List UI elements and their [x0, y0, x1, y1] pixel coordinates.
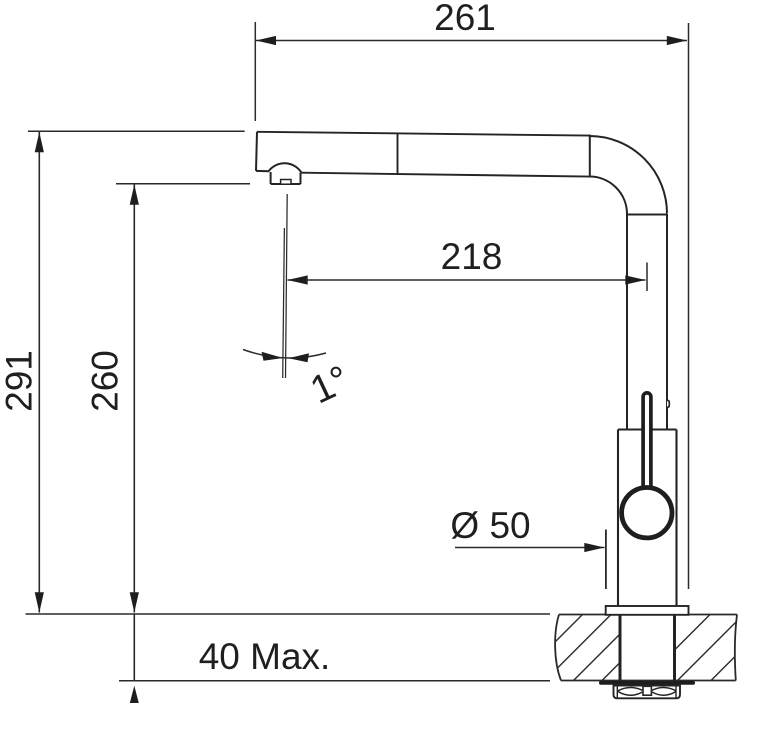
svg-text:291: 291 [0, 350, 40, 412]
svg-text:40 Max.: 40 Max. [199, 636, 331, 677]
svg-text:260: 260 [85, 350, 126, 412]
svg-text:218: 218 [441, 236, 503, 277]
svg-text:Ø 50: Ø 50 [450, 505, 530, 546]
svg-text:261: 261 [434, 0, 496, 38]
